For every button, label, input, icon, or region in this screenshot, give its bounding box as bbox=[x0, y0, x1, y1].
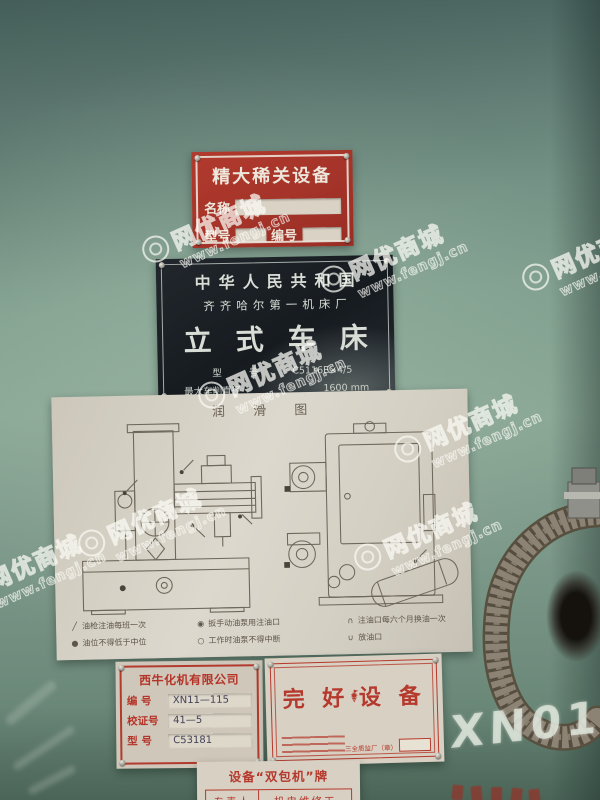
rivet bbox=[118, 665, 124, 671]
name-label: 名称 bbox=[204, 198, 230, 217]
model-row: 型 号 C5116E×4/5 bbox=[158, 362, 395, 381]
wall-hole bbox=[546, 570, 600, 662]
legend-item: ●油位不得低于中位 bbox=[70, 632, 196, 652]
legend-symbol: ∩ bbox=[346, 616, 355, 625]
stamp-row: 三全质监厂（章） bbox=[345, 738, 431, 753]
row-label: 编 号 bbox=[127, 693, 163, 708]
rivet bbox=[343, 153, 349, 159]
lubrication-diagram-plate: 润 滑 图 bbox=[51, 389, 472, 661]
legend-item: ∪放油口 bbox=[346, 627, 465, 646]
factory-line: 齐齐哈尔第一机床厂 bbox=[156, 295, 393, 316]
model-blank-field bbox=[235, 228, 266, 242]
name-blank-field bbox=[235, 198, 341, 215]
rivet bbox=[253, 663, 259, 669]
company-row: 型 号 C53181 bbox=[127, 732, 252, 748]
good-condition-plate: 完 好 设 备 三全质监厂（章） bbox=[265, 654, 445, 767]
legend-symbol: ○ bbox=[196, 636, 205, 645]
serial-blank-field bbox=[302, 227, 342, 242]
model-serial-row: 型号 编号 bbox=[204, 224, 341, 245]
rivet bbox=[159, 262, 165, 268]
company-plate: 西牛化机有限公司 编 号 XN11—115 校证号 41—5 型 号 C5318… bbox=[115, 660, 263, 769]
rivet bbox=[384, 258, 390, 264]
rivet bbox=[435, 753, 441, 759]
legend-text: 放油口 bbox=[358, 632, 382, 644]
legend-text: 注油口每六个月换油一次 bbox=[358, 613, 446, 626]
rivet bbox=[194, 155, 200, 161]
cell-person: 专责人 bbox=[206, 790, 259, 800]
machine-front-view-drawing bbox=[64, 419, 266, 619]
serial-label: 编号 bbox=[271, 225, 297, 244]
key-equipment-plate: 精大稀关设备 名称 型号 编号 bbox=[191, 150, 353, 248]
dual-duty-plate: 设备“双包机”牌 专责人 机电维修工 bbox=[197, 760, 360, 800]
legend-text: 工作时油泵不得中断 bbox=[208, 634, 280, 647]
row-value: 41—5 bbox=[168, 713, 252, 728]
row-value: C53181 bbox=[168, 733, 252, 748]
word-shebei: 设 备 bbox=[358, 678, 426, 712]
legend-text: 扳手动油泵用注油口 bbox=[208, 617, 280, 630]
country-line: 中华人民共和国 bbox=[156, 266, 393, 295]
dual-plate-title: 设备“双包机”牌 bbox=[197, 765, 360, 785]
product-name: 立式车床 bbox=[157, 316, 395, 361]
legend-symbol: ╱ bbox=[70, 622, 79, 631]
cell-worker: 机电维修工 bbox=[259, 789, 351, 800]
lubrication-legend: ╱油枪注油每班一次 ●油位不得低于中位 ◉扳手动油泵用注油口 ○工作时油泵不得中… bbox=[70, 610, 465, 652]
rivet bbox=[119, 760, 125, 766]
row-value: XN11—115 bbox=[168, 693, 252, 708]
stamp-label: 三全质监厂（章） bbox=[345, 742, 397, 753]
company-row: 编 号 XN11—115 bbox=[127, 692, 252, 708]
good-plate-heading: 完 好 设 备 bbox=[265, 654, 444, 723]
good-plate-fineprint: 三全质监厂（章） bbox=[282, 733, 431, 755]
lathe-nameplate: 中华人民共和国 齐齐哈尔第一机床厂 立式车床 型 号 C5116E×4/5 最大… bbox=[156, 255, 396, 403]
model-label: 型号 bbox=[204, 226, 230, 245]
row-label: 型 号 bbox=[127, 733, 163, 748]
name-row: 名称 bbox=[204, 196, 341, 217]
legend-text: 油位不得低于中位 bbox=[82, 636, 146, 648]
company-row: 校证号 41—5 bbox=[127, 712, 252, 728]
machine-side-view-drawing bbox=[270, 415, 464, 615]
legend-symbol: ◉ bbox=[196, 619, 205, 628]
legend-text: 油枪注油每班一次 bbox=[82, 619, 146, 631]
dual-plate-table-row: 专责人 机电维修工 bbox=[205, 788, 352, 800]
row-label: 校证号 bbox=[127, 713, 163, 728]
fineprint-lines bbox=[282, 736, 314, 755]
legend-symbol: ∪ bbox=[346, 633, 355, 642]
rivet bbox=[196, 239, 202, 245]
legend-item: ○工作时油泵不得中断 bbox=[196, 629, 346, 649]
company-title: 西牛化机有限公司 bbox=[116, 670, 263, 689]
model-label: 型 号 bbox=[200, 364, 270, 379]
stamp-blank-box bbox=[399, 738, 431, 752]
model-value: C5116E×4/5 bbox=[292, 364, 352, 376]
word-wanhao: 完 好 bbox=[282, 680, 350, 714]
fineprint-lines bbox=[313, 735, 345, 754]
rivet bbox=[345, 237, 351, 243]
legend-symbol: ● bbox=[70, 639, 79, 648]
photo-of-machine-nameplates: 精大稀关设备 名称 型号 编号 中华人民共和国 齐齐哈尔第一机床厂 立式车床 型… bbox=[0, 0, 600, 800]
key-plate-title: 精大稀关设备 bbox=[191, 161, 352, 189]
